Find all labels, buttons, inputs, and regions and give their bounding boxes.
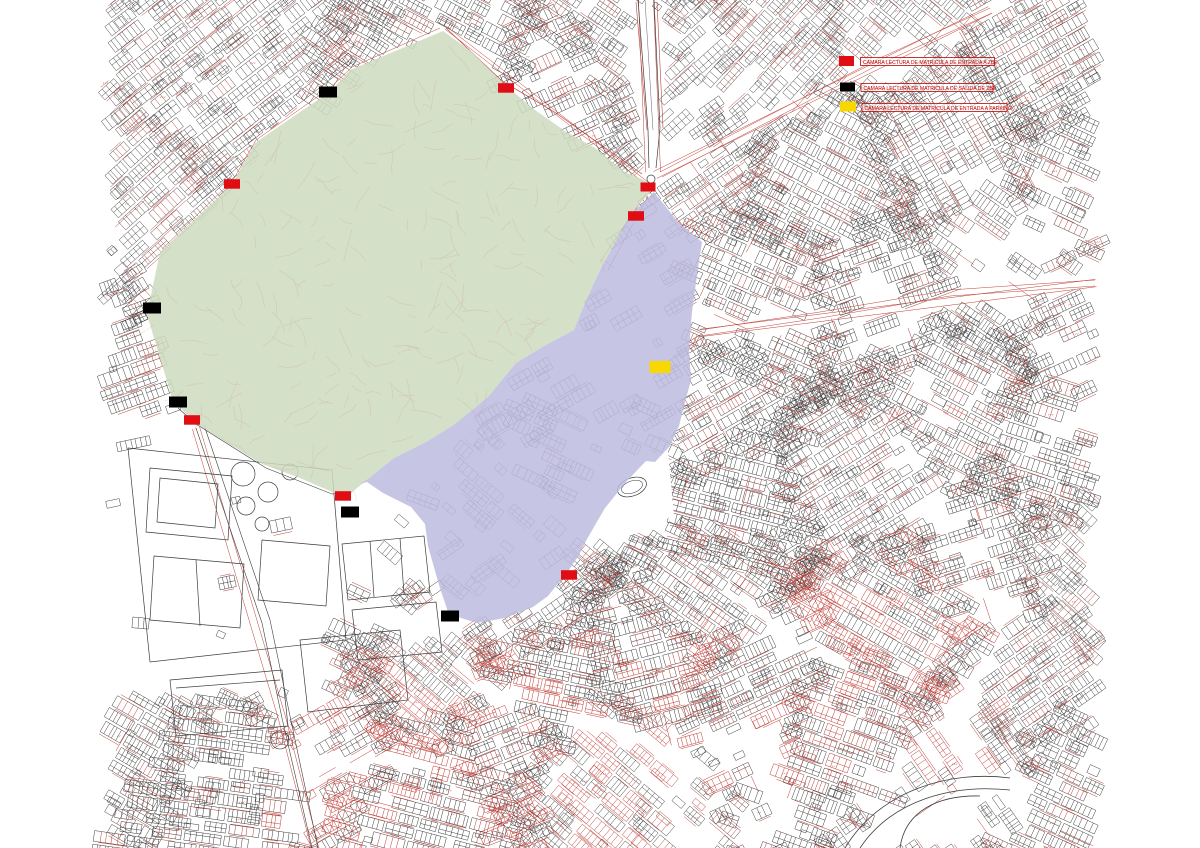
- svg-text:CAMARA LECTURA DE MATRICULA DE: CAMARA LECTURA DE MATRICULA DE ENTRADA A…: [863, 60, 998, 66]
- svg-text:CAMARA LECTURA DE MATRICULA DE: CAMARA LECTURA DE MATRICULA DE ENTRADA A…: [865, 106, 1012, 112]
- svg-text:CAMARA LECTURA DE MATRICULA DE: CAMARA LECTURA DE MATRICULA DE SALIDA DE…: [864, 86, 997, 92]
